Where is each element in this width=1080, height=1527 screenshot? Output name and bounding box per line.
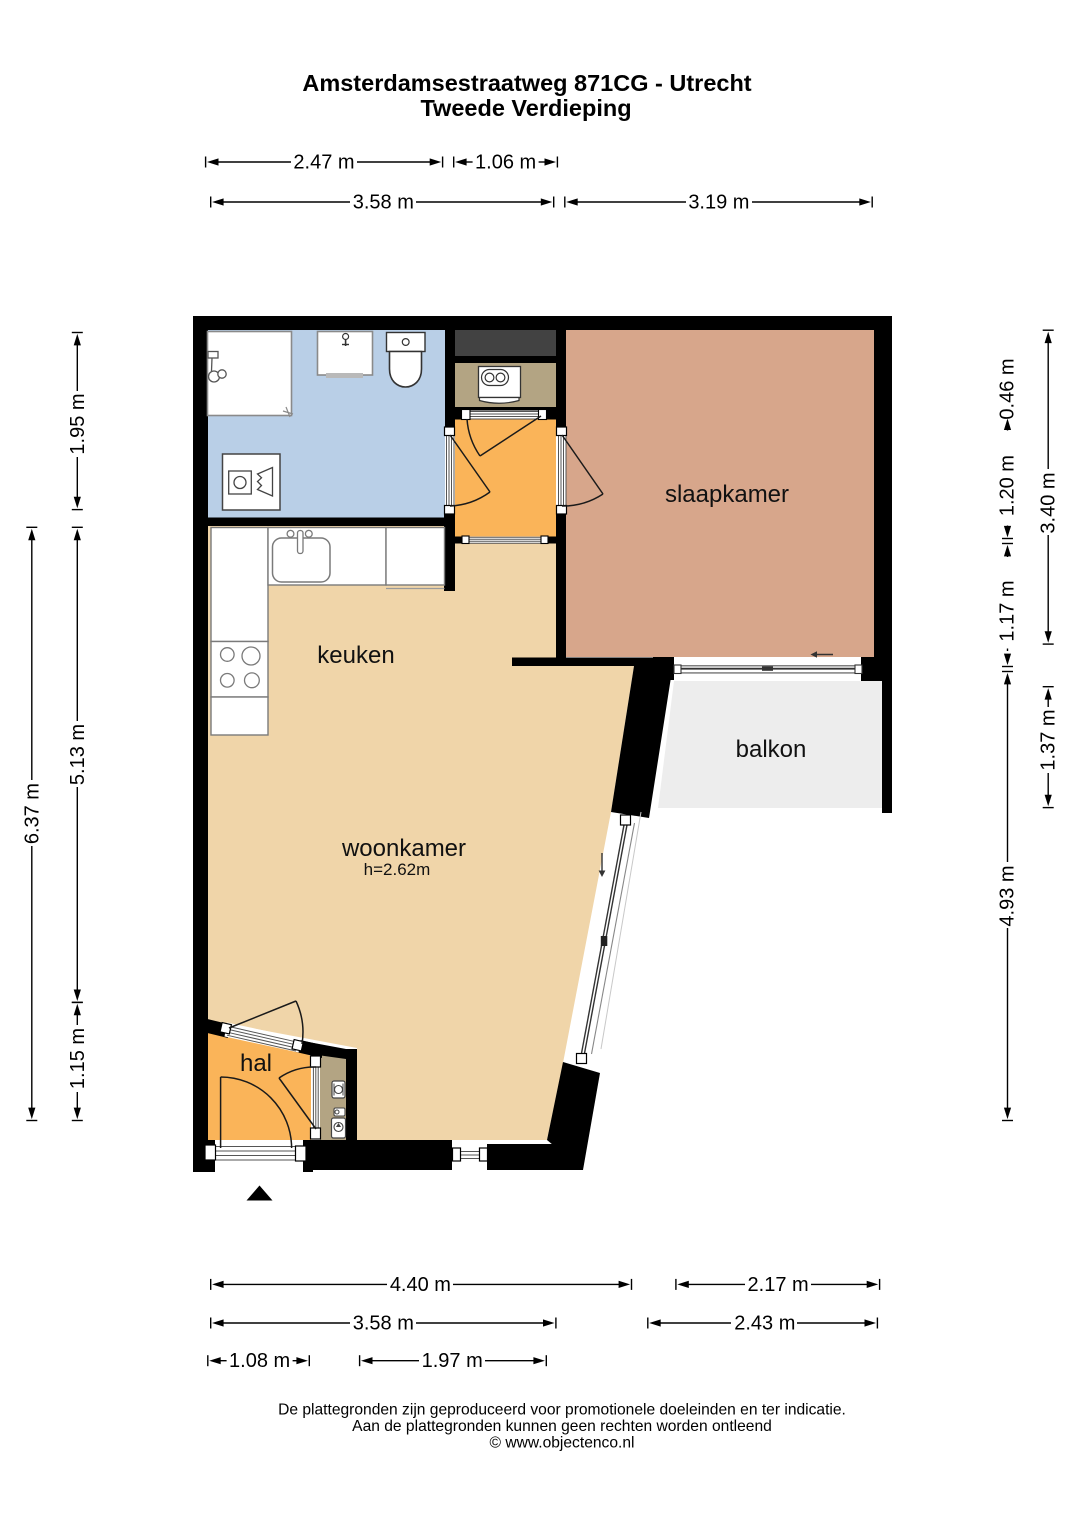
svg-text:Amsterdamsestraatweg 871CG - U: Amsterdamsestraatweg 871CG - Utrecht [302, 70, 751, 96]
svg-text:1.37 m: 1.37 m [1038, 709, 1060, 770]
svg-text:3.40 m: 3.40 m [1038, 472, 1060, 533]
svg-text:keuken: keuken [317, 642, 394, 669]
svg-text:1.06 m: 1.06 m [475, 152, 536, 174]
svg-text:2.47 m: 2.47 m [293, 152, 354, 174]
svg-text:4.93 m: 4.93 m [997, 865, 1019, 926]
svg-text:slaapkamer: slaapkamer [665, 481, 789, 508]
svg-text:h=2.62m: h=2.62m [364, 860, 431, 879]
svg-text:3.58 m: 3.58 m [353, 192, 414, 214]
svg-text:Aan de plattegronden kunnen ge: Aan de plattegronden kunnen geen rechten… [352, 1418, 772, 1435]
svg-text:© www.objectenco.nl: © www.objectenco.nl [490, 1435, 635, 1452]
svg-text:woonkamer: woonkamer [341, 835, 466, 862]
svg-text:1.95 m: 1.95 m [67, 393, 89, 454]
svg-text:1.15 m: 1.15 m [67, 1028, 89, 1089]
svg-text:4.40 m: 4.40 m [390, 1274, 451, 1296]
svg-text:De plattegronden zijn geproduc: De plattegronden zijn geproduceerd voor … [278, 1402, 846, 1419]
svg-text:1.17 m: 1.17 m [997, 580, 1019, 641]
svg-text:2.43 m: 2.43 m [734, 1313, 795, 1335]
svg-text:2.17 m: 2.17 m [748, 1274, 809, 1296]
svg-text:hal: hal [240, 1050, 272, 1077]
svg-text:3.58 m: 3.58 m [353, 1313, 414, 1335]
svg-text:Tweede Verdieping: Tweede Verdieping [420, 95, 631, 121]
svg-text:1.08 m: 1.08 m [229, 1350, 290, 1372]
svg-text:5.13 m: 5.13 m [67, 724, 89, 785]
svg-text:6.37 m: 6.37 m [21, 783, 43, 844]
svg-text:1.97 m: 1.97 m [422, 1350, 483, 1372]
svg-text:0.46 m: 0.46 m [997, 358, 1019, 419]
svg-text:1.20 m: 1.20 m [997, 455, 1019, 516]
svg-text:3.19 m: 3.19 m [688, 192, 749, 214]
svg-text:balkon: balkon [736, 736, 807, 763]
